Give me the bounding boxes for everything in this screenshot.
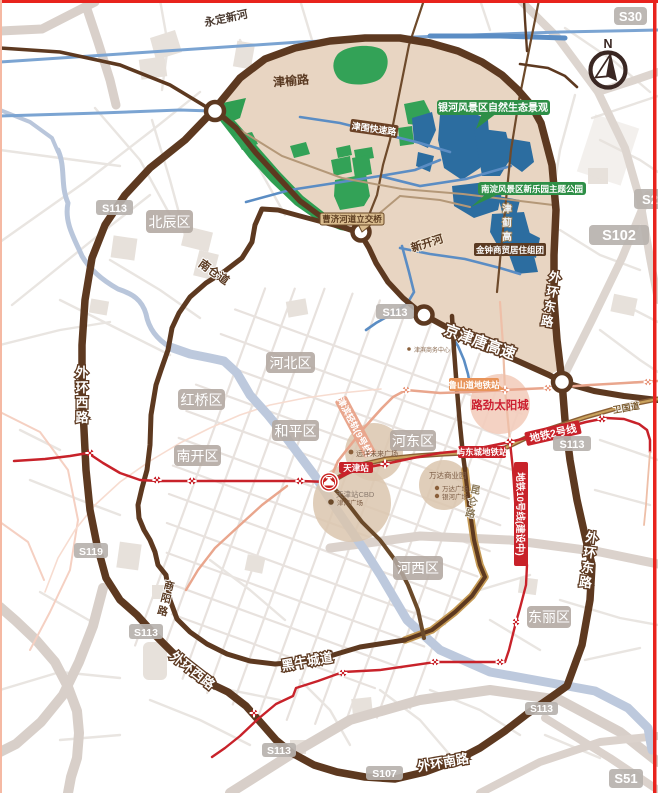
- svg-text:和平区: 和平区: [275, 423, 317, 439]
- svg-text:东: 东: [580, 559, 595, 576]
- svg-text:万达广场: 万达广场: [442, 484, 469, 493]
- svg-text:曹济河道立交桥: 曹济河道立交桥: [322, 214, 382, 224]
- svg-text:鲁山道地铁站: 鲁山道地铁站: [448, 380, 500, 390]
- svg-text:S113: S113: [134, 627, 158, 639]
- svg-text:红桥区: 红桥区: [181, 392, 223, 408]
- svg-text:万达商业园: 万达商业园: [429, 470, 467, 480]
- svg-text:路: 路: [75, 410, 89, 425]
- svg-text:北辰区: 北辰区: [149, 214, 191, 230]
- svg-text:河北区: 河北区: [270, 355, 312, 371]
- svg-text:屿东城地铁站: 屿东城地铁站: [456, 447, 508, 457]
- svg-text:S113: S113: [559, 439, 584, 451]
- svg-text:蓟: 蓟: [501, 217, 512, 229]
- svg-text:南淀风景区新乐园主题公园: 南淀风景区新乐园主题公园: [481, 184, 583, 194]
- svg-text:S113: S113: [102, 203, 127, 215]
- svg-text:银河广场: 银河广场: [442, 492, 469, 501]
- svg-text:天津站CBD: 天津站CBD: [336, 489, 375, 499]
- svg-text:地铁10号线(建设中): 地铁10号线(建设中): [514, 472, 526, 555]
- svg-text:西: 西: [75, 395, 88, 410]
- svg-text:银河风景区自然生态景观: 银河风景区自然生态景观: [438, 101, 548, 114]
- svg-text:S102: S102: [602, 228, 636, 244]
- svg-text:S113: S113: [530, 704, 553, 715]
- svg-text:S113: S113: [382, 307, 407, 319]
- svg-text:S107: S107: [372, 768, 397, 780]
- svg-text:津滨商务中心: 津滨商务中心: [414, 346, 450, 354]
- svg-text:环: 环: [582, 544, 597, 561]
- svg-text:金钟商贸居住组团: 金钟商贸居住组团: [475, 245, 544, 255]
- svg-text:路劲太阳城: 路劲太阳城: [471, 398, 529, 412]
- svg-text:N: N: [603, 37, 612, 51]
- svg-text:S30: S30: [619, 9, 642, 24]
- svg-text:远洋未来广场: 远洋未来广场: [356, 449, 398, 458]
- svg-text:外: 外: [74, 365, 88, 380]
- svg-text:津: 津: [502, 203, 512, 215]
- svg-text:河东区: 河东区: [392, 433, 434, 449]
- svg-text:S119: S119: [79, 546, 103, 558]
- svg-text:S113: S113: [267, 745, 291, 757]
- svg-text:高: 高: [502, 231, 512, 243]
- svg-text:河西区: 河西区: [397, 560, 439, 576]
- svg-text:南开区: 南开区: [177, 448, 219, 464]
- svg-text:S51: S51: [614, 771, 637, 786]
- svg-text:津湾广场: 津湾广场: [337, 498, 364, 507]
- svg-text:天津站: 天津站: [343, 463, 369, 473]
- svg-text:东丽区: 东丽区: [528, 609, 570, 625]
- svg-text:环: 环: [75, 380, 88, 395]
